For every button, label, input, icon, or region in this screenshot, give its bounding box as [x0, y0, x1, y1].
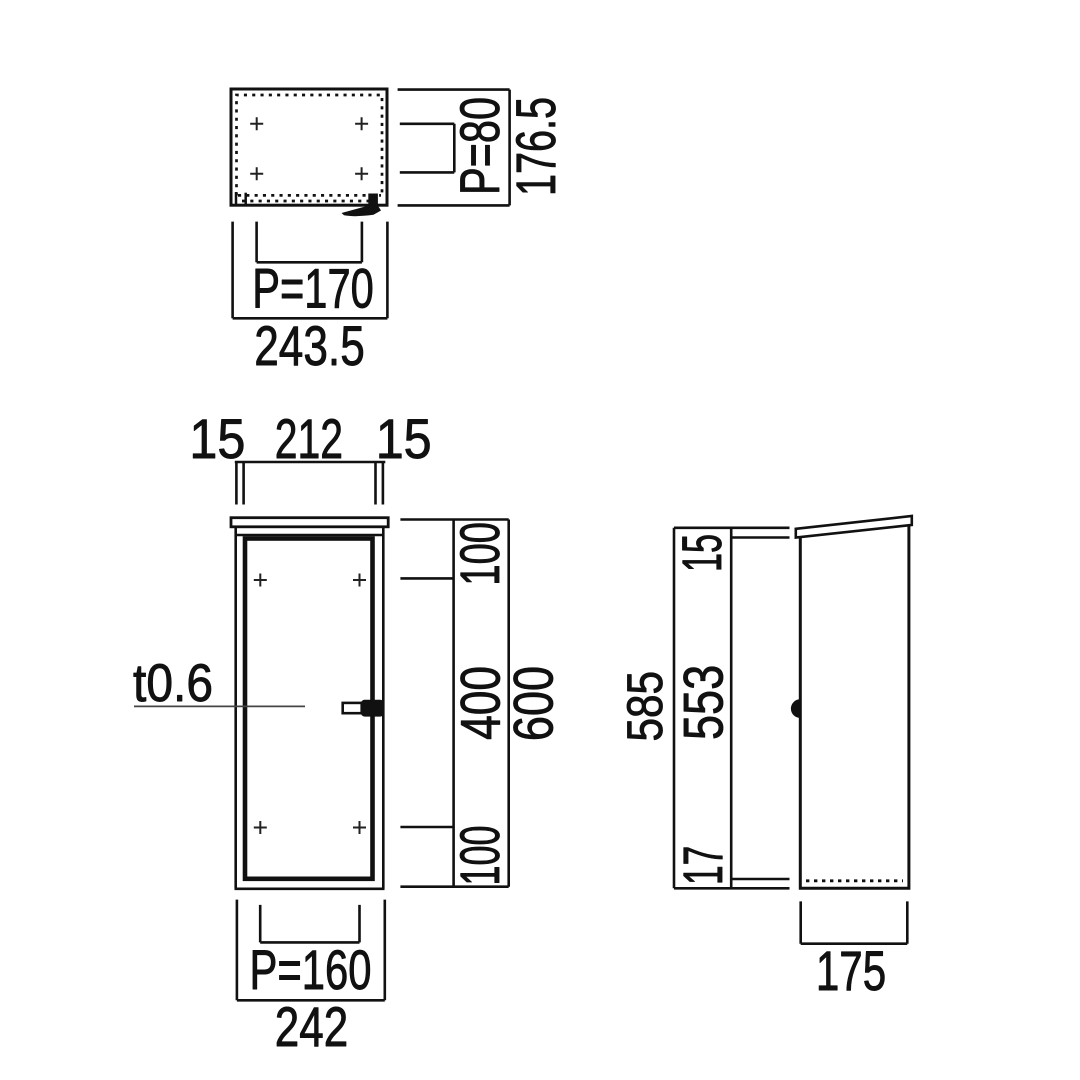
- svg-text:P=170: P=170: [252, 257, 374, 320]
- svg-text:17: 17: [671, 846, 734, 885]
- svg-text:243.5: 243.5: [254, 314, 365, 377]
- svg-text:212: 212: [275, 407, 343, 470]
- svg-text:176.5: 176.5: [504, 97, 567, 196]
- svg-text:15: 15: [376, 407, 432, 470]
- svg-text:175: 175: [816, 939, 886, 1002]
- svg-text:242: 242: [275, 995, 348, 1058]
- svg-text:15: 15: [189, 407, 245, 470]
- svg-text:100: 100: [448, 826, 511, 886]
- svg-text:553: 553: [671, 665, 734, 740]
- svg-text:P=80: P=80: [448, 97, 511, 195]
- svg-text:585: 585: [617, 671, 673, 742]
- svg-text:t0.6: t0.6: [133, 654, 213, 713]
- svg-text:15: 15: [670, 534, 733, 572]
- svg-text:P=160: P=160: [250, 938, 372, 1001]
- svg-text:600: 600: [502, 666, 565, 741]
- svg-text:100: 100: [448, 522, 511, 586]
